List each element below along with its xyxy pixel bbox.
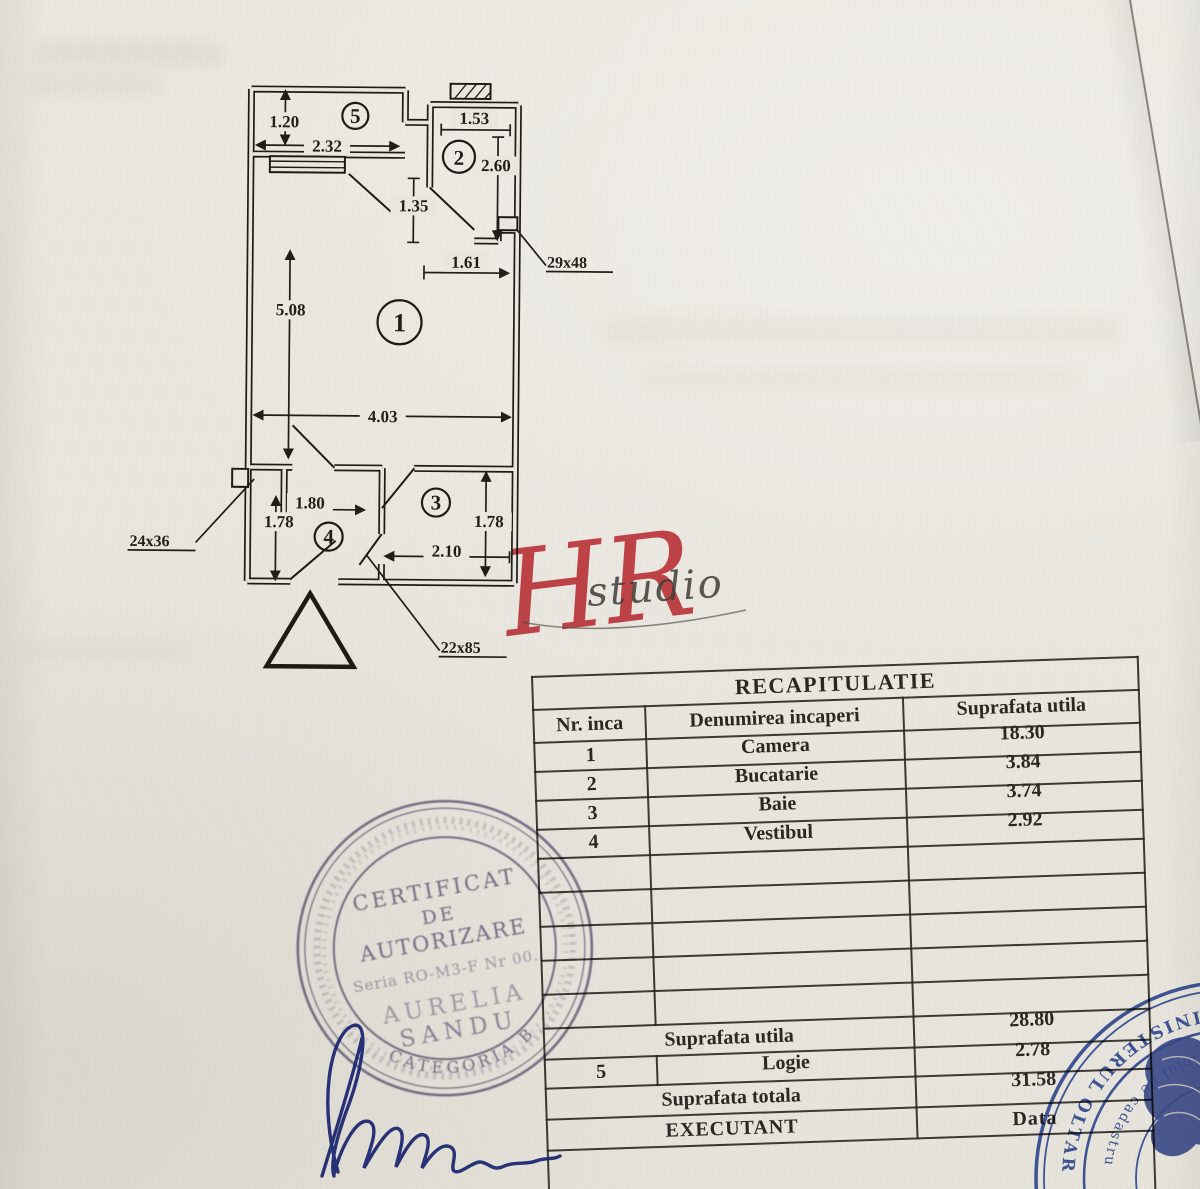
row-area: 3.74 xyxy=(1006,779,1042,803)
logie-name: Logie xyxy=(762,1051,811,1076)
dim-1-78-left: 1.78 xyxy=(264,512,294,531)
dim-1-35: 1.35 xyxy=(399,196,429,215)
crease-shadow xyxy=(1098,0,1200,445)
shaft-hatch xyxy=(450,84,490,99)
duct-label-24x36: 24x36 xyxy=(130,533,170,550)
scanned-document-page: 1.20 2.32 1.53 2.60 1.35 1.61 5.08 4.03 … xyxy=(0,0,1200,1189)
dim-4-03: 4.03 xyxy=(368,407,398,426)
duct-label-29x48: 29x48 xyxy=(547,255,587,272)
row-area: 2.92 xyxy=(1007,808,1043,832)
dim-1-20: 1.20 xyxy=(269,112,299,131)
room-1-number: 1 xyxy=(393,308,406,337)
col-header-name: Denumirea incaperi xyxy=(689,704,860,732)
ministry-emblem-eagle xyxy=(1144,1037,1200,1156)
dim-1-80: 1.80 xyxy=(295,493,325,512)
bleedthrough-smudge xyxy=(600,318,1120,344)
row-nr: 1 xyxy=(585,744,596,766)
table-title: RECAPITULATIE xyxy=(734,667,936,699)
dim-2-32: 2.32 xyxy=(312,136,342,155)
window-symbol xyxy=(270,156,345,173)
handwritten-signature xyxy=(298,1004,570,1188)
row-area: 3.84 xyxy=(1005,750,1041,774)
room-3-number: 3 xyxy=(431,491,442,515)
room-5-number: 5 xyxy=(350,104,361,128)
row-name: Camera xyxy=(741,734,811,759)
executant-label: EXECUTANT xyxy=(665,1115,799,1141)
dim-2-10: 2.10 xyxy=(432,542,462,561)
total-area-label: Suprafata totala xyxy=(661,1084,801,1111)
ministry-round-stamp: MINISTERUL OLTAR Oficiul de cadastru xyxy=(980,950,1200,1189)
useful-area-label: Suprafata utila xyxy=(664,1024,794,1050)
room-4-number: 4 xyxy=(323,525,334,549)
entrance-triangle xyxy=(267,593,355,667)
dim-1-61: 1.61 xyxy=(451,253,481,272)
dim-5-08: 5.08 xyxy=(276,300,306,319)
duct-24x36 xyxy=(232,469,248,487)
bleedthrough-smudge xyxy=(640,368,1080,390)
room-2-number: 2 xyxy=(454,146,465,170)
duct-29x48 xyxy=(498,217,517,230)
dim-1-53: 1.53 xyxy=(459,109,489,128)
bleedthrough-smudge xyxy=(35,42,225,66)
row-name: Vestibul xyxy=(743,821,813,846)
col-header-area: Suprafata utila xyxy=(956,694,1086,721)
watermark-word: studio xyxy=(585,561,725,616)
col-header-nr: Nr. inca xyxy=(556,712,624,736)
dim-2-60: 2.60 xyxy=(481,156,511,175)
row-name: Baie xyxy=(758,792,797,816)
row-area: 18.30 xyxy=(999,721,1045,745)
row-nr: 3 xyxy=(587,802,598,824)
hr-studio-watermark: HR studio xyxy=(462,498,762,673)
row-name: Bucatarie xyxy=(734,763,818,789)
row-nr: 2 xyxy=(586,773,597,795)
